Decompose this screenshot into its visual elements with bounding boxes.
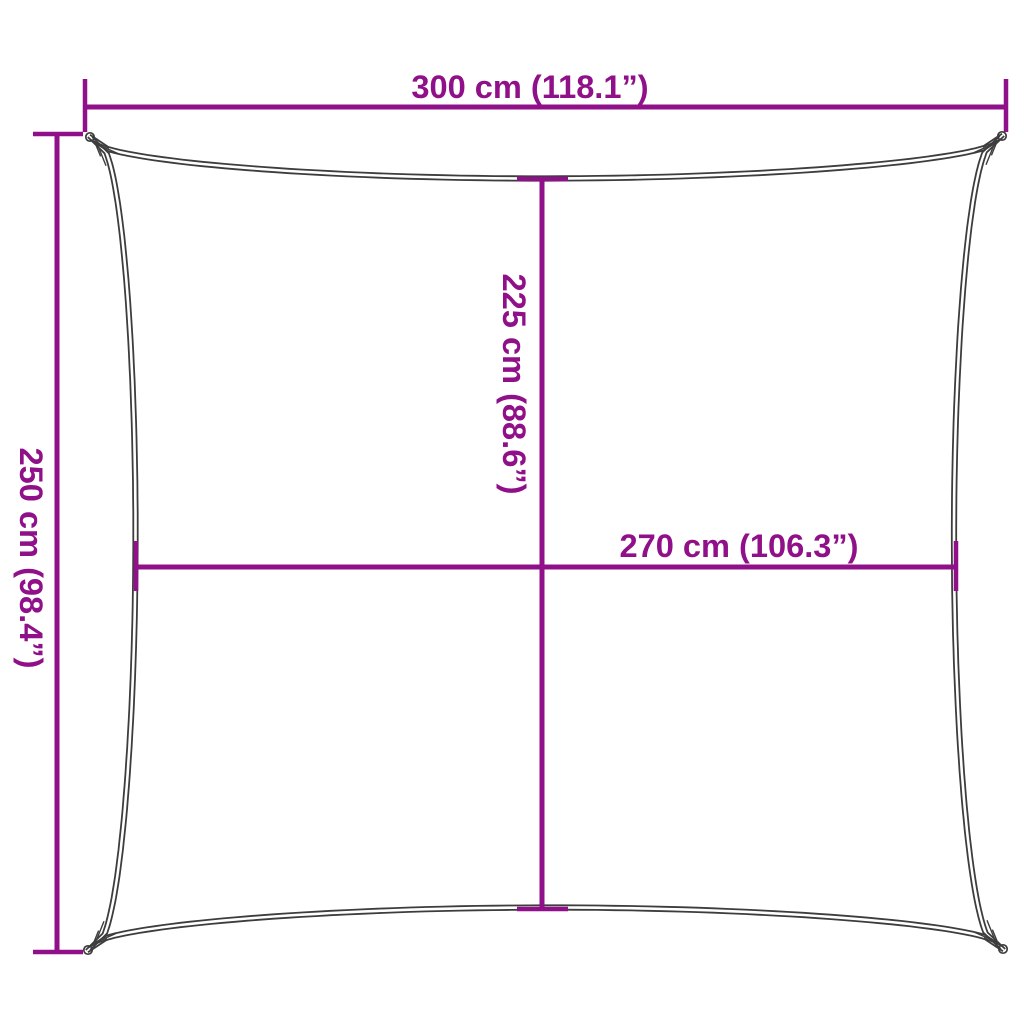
svg-text:300 cm (118.1”): 300 cm (118.1”) bbox=[411, 68, 648, 105]
svg-text:225 cm (88.6”): 225 cm (88.6”) bbox=[496, 274, 533, 495]
svg-text:270 cm (106.3”): 270 cm (106.3”) bbox=[619, 527, 858, 564]
svg-text:250 cm (98.4”): 250 cm (98.4”) bbox=[13, 448, 50, 669]
